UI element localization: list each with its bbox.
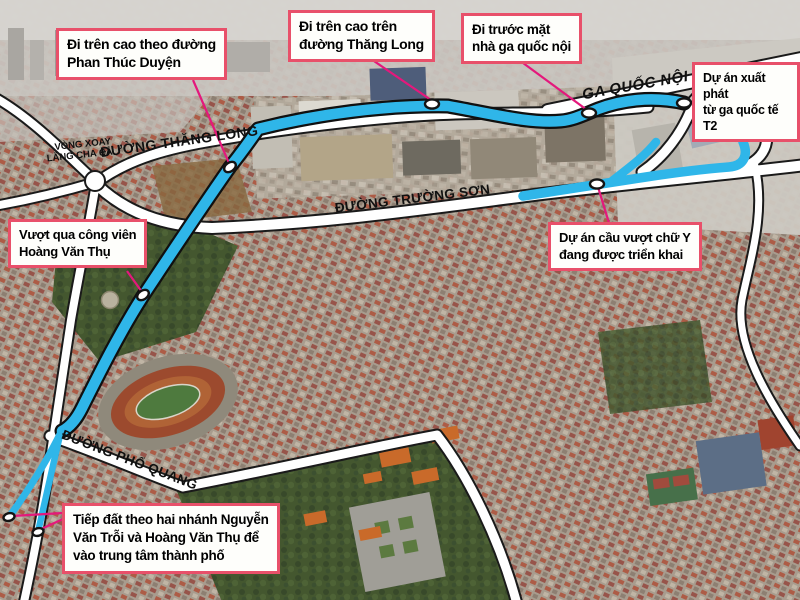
route-marker bbox=[677, 98, 691, 107]
callout-elevated-thang-long: Đi trên cao trên đường Thăng Long bbox=[288, 10, 435, 62]
callout-cross-hoang-van-thu-park: Vượt qua công viên Hoàng Văn Thụ bbox=[8, 219, 147, 268]
route-marker bbox=[582, 108, 596, 117]
infographic-map: ĐƯỜNG THĂNG LONG VÒNG XOAY LĂNG CHA CẢ G… bbox=[0, 0, 800, 600]
callout-start-international-t2: Dự án xuất phát từ ga quốc tế T2 bbox=[692, 62, 800, 142]
route-marker bbox=[425, 99, 439, 108]
callout-elevated-phan-thuc-duyen: Đi trên cao theo đường Phan Thúc Duyện bbox=[56, 28, 227, 80]
callout-y-flyover-project: Dự án cầu vượt chữ Y đang được triển kha… bbox=[548, 222, 702, 271]
route-marker bbox=[590, 179, 604, 188]
callout-landing-two-branches: Tiếp đất theo hai nhánh Nguyễn Văn Trỗi … bbox=[62, 503, 280, 574]
callout-front-domestic-terminal: Đi trước mặt nhà ga quốc nội bbox=[461, 13, 582, 64]
roundabout-lang-cha-ca bbox=[85, 171, 105, 191]
